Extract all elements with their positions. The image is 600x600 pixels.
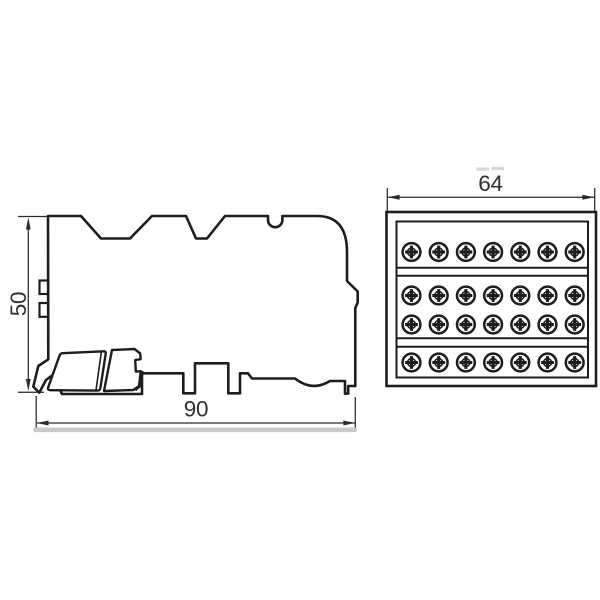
screw-terminal-icon	[430, 287, 448, 305]
screw-terminal-icon	[457, 354, 475, 372]
screw-grid	[403, 243, 584, 371]
screw-terminal-icon	[566, 316, 584, 334]
screw-terminal-icon	[484, 243, 502, 261]
screw-terminal-icon	[403, 316, 421, 334]
screw-terminal-icon	[539, 243, 557, 261]
screw-terminal-icon	[484, 287, 502, 305]
arrow-up	[26, 218, 31, 230]
screw-terminal-icon	[457, 243, 475, 261]
screw-terminal-icon	[566, 243, 584, 261]
technical-drawing-page: 50 90 64	[0, 0, 600, 600]
screw-terminal-icon	[566, 287, 584, 305]
screw-terminal-icon	[511, 287, 529, 305]
screw-terminal-icon	[539, 316, 557, 334]
release-latch-catch	[104, 349, 141, 391]
artifact-dash-right	[492, 167, 505, 170]
screw-terminal-icon	[457, 287, 475, 305]
screw-terminal-icon	[511, 354, 529, 372]
screw-terminal-icon	[511, 243, 529, 261]
screw-terminal-icon	[457, 316, 475, 334]
side-profile-view: 50 90	[6, 216, 358, 432]
screw-terminal-icon	[566, 354, 584, 372]
screw-terminal-icon	[539, 354, 557, 372]
front-view: 64	[387, 167, 597, 386]
arrow-left	[37, 421, 49, 426]
arrow-right	[582, 195, 594, 200]
technical-drawing-canvas: 50 90 64	[0, 0, 600, 600]
screw-terminal-icon	[403, 354, 421, 372]
screw-terminal-icon	[484, 316, 502, 334]
screw-terminal-icon	[430, 316, 448, 334]
screw-terminal-icon	[539, 287, 557, 305]
screw-terminal-icon	[484, 354, 502, 372]
screw-terminal-icon	[403, 287, 421, 305]
screw-terminal-icon	[430, 354, 448, 372]
arrow-left	[388, 195, 400, 200]
dim-width-label: 64	[478, 171, 502, 196]
screw-terminal-icon	[403, 243, 421, 261]
dimension-width-side: 90	[33, 396, 357, 432]
arrow-down	[26, 379, 31, 391]
surface-shadow	[33, 428, 357, 433]
arrow-right	[343, 421, 355, 426]
screw-terminal-icon	[511, 316, 529, 334]
dim-height-label: 50	[6, 292, 31, 316]
screw-terminal-icon	[430, 243, 448, 261]
dimension-width-front: 64	[387, 167, 594, 211]
dim-width-label: 90	[184, 397, 208, 422]
